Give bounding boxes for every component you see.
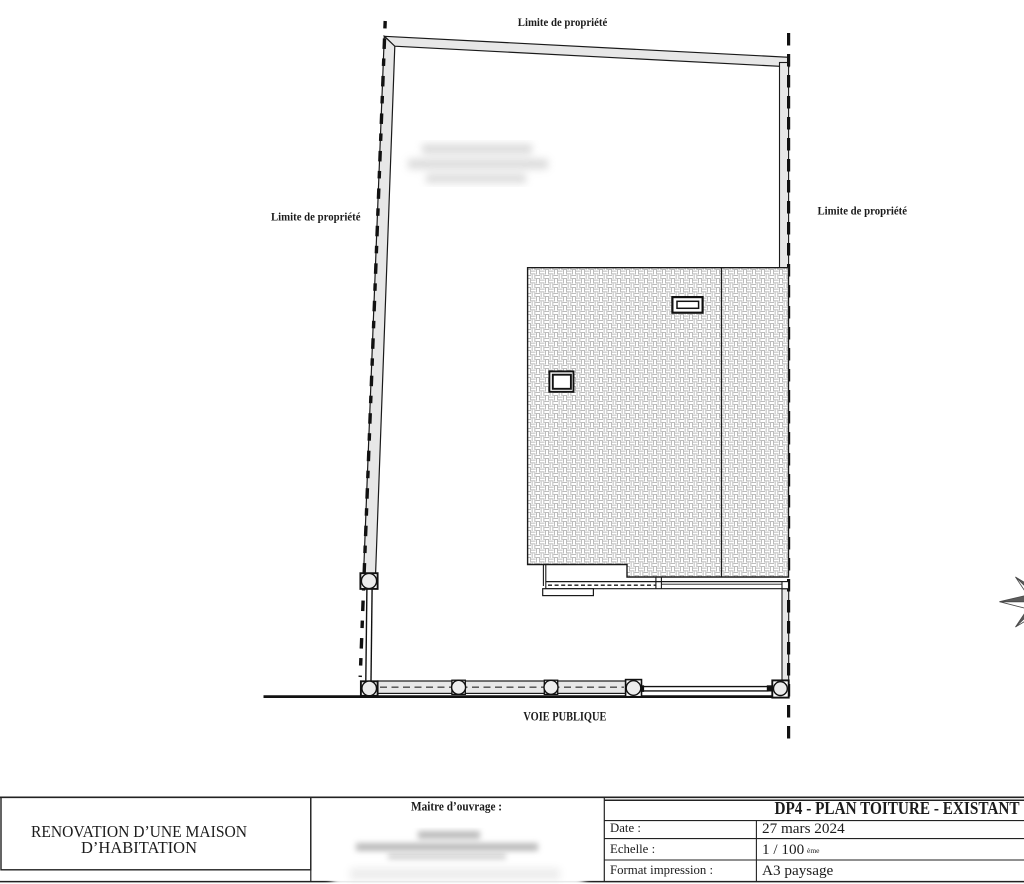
svg-text:Maitre d’ouvrage :: Maitre d’ouvrage :	[411, 800, 502, 814]
svg-text:A3 paysage: A3 paysage	[762, 862, 834, 879]
svg-text:ème: ème	[807, 846, 820, 855]
svg-text:27 mars 2024: 27 mars 2024	[762, 820, 845, 837]
svg-text:VOIE PUBLIQUE: VOIE PUBLIQUE	[523, 709, 606, 723]
svg-text:DP4 - PLAN TOITURE - EXISTANT: DP4 - PLAN TOITURE - EXISTANT	[775, 798, 1020, 818]
svg-text:Limite de propriété: Limite de propriété	[271, 210, 361, 224]
svg-text:Format impression :: Format impression :	[610, 863, 713, 877]
svg-text:Limite de propriété: Limite de propriété	[518, 15, 608, 29]
svg-text:D’HABITATION: D’HABITATION	[81, 838, 197, 857]
svg-text:Echelle :: Echelle :	[610, 842, 655, 856]
svg-text:Limite de propriété: Limite de propriété	[818, 204, 908, 218]
svg-text:1 / 100: 1 / 100	[762, 841, 805, 858]
svg-text:Date :: Date :	[610, 821, 641, 835]
